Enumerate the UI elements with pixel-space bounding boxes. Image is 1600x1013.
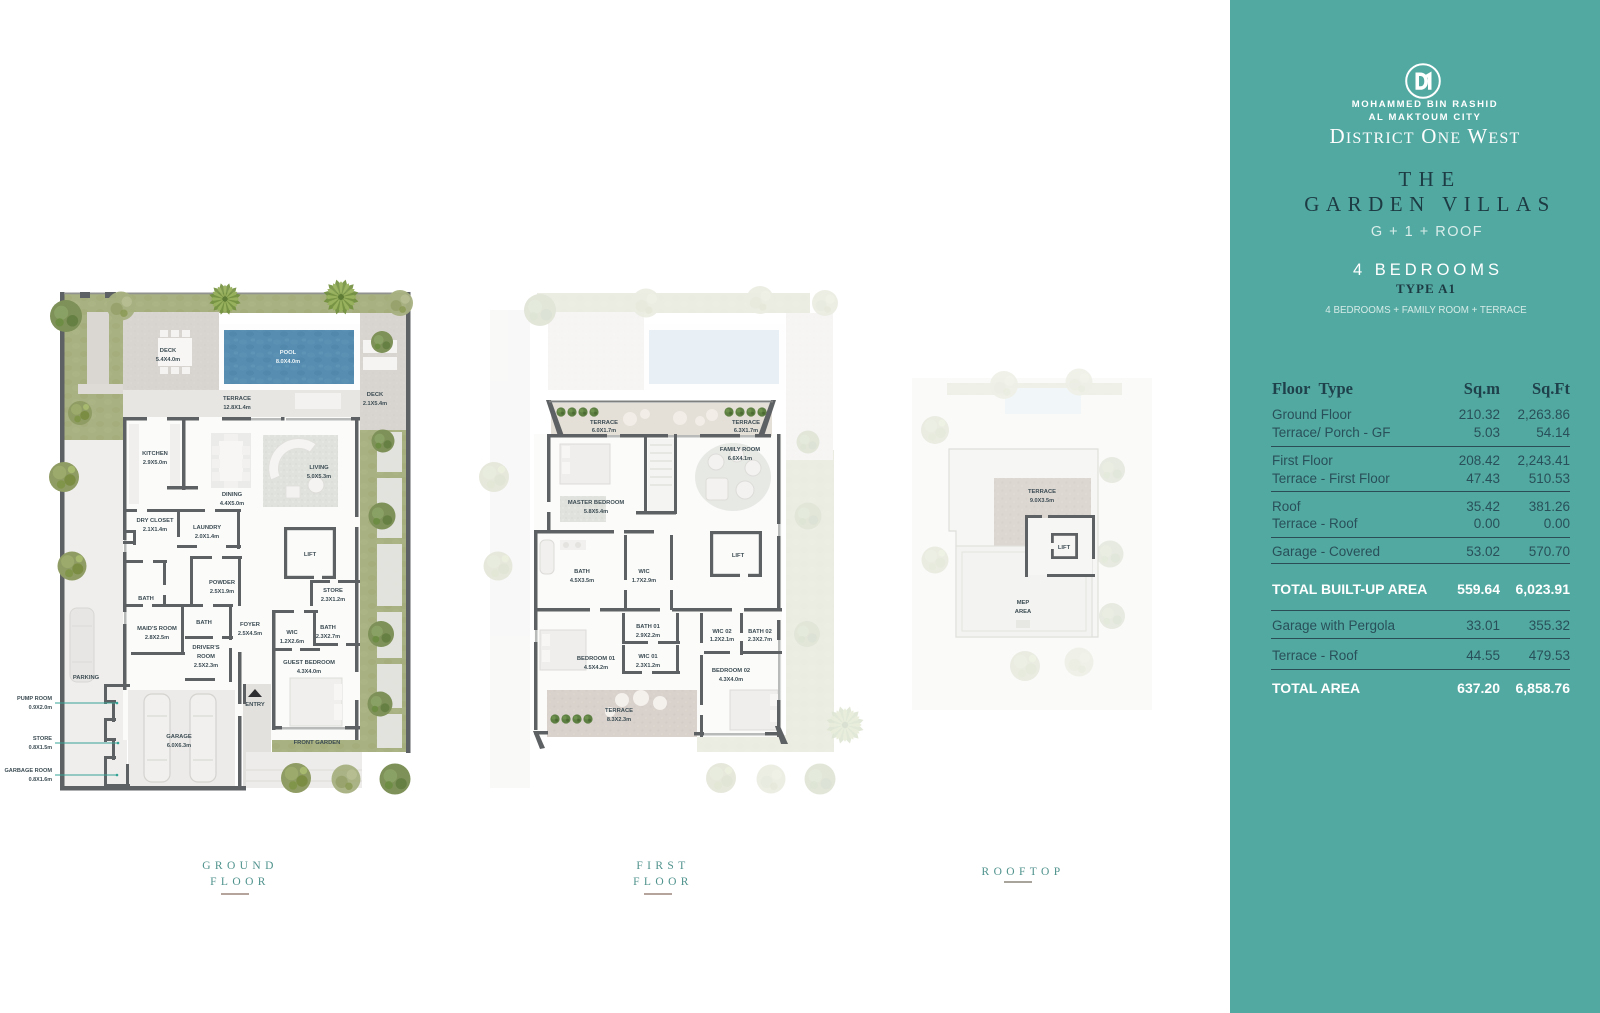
svg-text:LIFT: LIFT xyxy=(304,552,317,558)
svg-text:2.0X1.4m: 2.0X1.4m xyxy=(195,534,219,540)
svg-text:1.2X2.1m: 1.2X2.1m xyxy=(710,637,734,643)
svg-text:4.3X4.0m: 4.3X4.0m xyxy=(297,669,321,675)
svg-text:BATH: BATH xyxy=(574,569,590,575)
svg-text:DECK: DECK xyxy=(367,392,384,398)
svg-text:2.9X5.0m: 2.9X5.0m xyxy=(143,460,167,466)
svg-text:BATH: BATH xyxy=(196,620,212,626)
svg-text:5.0X5.3m: 5.0X5.3m xyxy=(307,474,331,480)
svg-text:4.5X3.5m: 4.5X3.5m xyxy=(570,578,594,584)
svg-text:9.0X3.5m: 9.0X3.5m xyxy=(1030,498,1054,504)
svg-text:4.5X4.2m: 4.5X4.2m xyxy=(584,665,608,671)
svg-text:TERRACE: TERRACE xyxy=(1028,489,1056,495)
svg-text:GUEST BEDROOM: GUEST BEDROOM xyxy=(283,660,335,666)
svg-text:8.0X4.0m: 8.0X4.0m xyxy=(276,359,300,365)
svg-text:2.5X4.5m: 2.5X4.5m xyxy=(238,631,262,637)
svg-text:AREA: AREA xyxy=(1015,609,1032,615)
svg-text:5.8X5.4m: 5.8X5.4m xyxy=(584,509,608,515)
svg-text:PUMP ROOM: PUMP ROOM xyxy=(17,696,52,702)
svg-text:LIFT: LIFT xyxy=(1058,545,1071,551)
svg-text:MASTER BEDROOM: MASTER BEDROOM xyxy=(568,500,625,506)
svg-text:2.5X2.3m: 2.5X2.3m xyxy=(194,663,218,669)
svg-text:2.9X2.2m: 2.9X2.2m xyxy=(636,633,660,639)
svg-text:BEDROOM 02: BEDROOM 02 xyxy=(712,668,750,674)
svg-text:BATH: BATH xyxy=(138,596,154,602)
svg-text:12.8X1.4m: 12.8X1.4m xyxy=(223,405,250,411)
svg-text:MEP: MEP xyxy=(1017,600,1030,606)
svg-text:2.1X5.4m: 2.1X5.4m xyxy=(363,401,387,407)
svg-text:POOL: POOL xyxy=(280,350,297,356)
svg-text:2.3X2.7m: 2.3X2.7m xyxy=(316,634,340,640)
svg-text:FRONT GARDEN: FRONT GARDEN xyxy=(294,740,341,746)
svg-text:STORE: STORE xyxy=(33,736,52,742)
svg-text:ENTRY: ENTRY xyxy=(245,702,265,708)
svg-text:6.6X4.1m: 6.6X4.1m xyxy=(728,456,752,462)
svg-text:0.8X1.5m: 0.8X1.5m xyxy=(29,745,53,751)
svg-text:2.3X1.2m: 2.3X1.2m xyxy=(321,597,345,603)
svg-text:WIC 01: WIC 01 xyxy=(638,654,658,660)
svg-text:GARAGE: GARAGE xyxy=(166,734,192,740)
svg-text:2.5X1.9m: 2.5X1.9m xyxy=(210,589,234,595)
svg-text:LAUNDRY: LAUNDRY xyxy=(193,525,221,531)
svg-text:0.8X1.6m: 0.8X1.6m xyxy=(29,777,53,783)
svg-text:2.8X2.5m: 2.8X2.5m xyxy=(145,635,169,641)
svg-text:BATH: BATH xyxy=(320,625,336,631)
svg-text:6.0X6.3m: 6.0X6.3m xyxy=(167,743,191,749)
svg-text:0.9X2.0m: 0.9X2.0m xyxy=(29,705,53,711)
svg-text:5.4X4.0m: 5.4X4.0m xyxy=(156,357,180,363)
svg-text:BATH 01: BATH 01 xyxy=(636,624,661,630)
svg-text:2.1X1.4m: 2.1X1.4m xyxy=(143,527,167,533)
svg-text:WIC 02: WIC 02 xyxy=(712,629,731,635)
svg-text:6.0X1.7m: 6.0X1.7m xyxy=(592,428,616,434)
svg-text:DRIVER'S: DRIVER'S xyxy=(192,645,219,651)
svg-text:TERRACE: TERRACE xyxy=(732,420,760,426)
svg-text:FAMILY ROOM: FAMILY ROOM xyxy=(720,447,760,453)
svg-text:LIVING: LIVING xyxy=(309,465,329,471)
svg-text:2.3X2.7m: 2.3X2.7m xyxy=(748,637,772,643)
svg-text:6.3X1.7m: 6.3X1.7m xyxy=(734,428,758,434)
svg-text:GARBAGE ROOM: GARBAGE ROOM xyxy=(4,768,52,774)
svg-text:4.4X5.0m: 4.4X5.0m xyxy=(220,501,244,507)
svg-text:WIC: WIC xyxy=(638,569,650,575)
svg-text:2.3X1.2m: 2.3X1.2m xyxy=(636,663,660,669)
svg-text:DINING: DINING xyxy=(222,492,243,498)
svg-text:TERRACE: TERRACE xyxy=(223,396,251,402)
svg-text:WIC: WIC xyxy=(286,630,298,636)
svg-text:8.3X2.3m: 8.3X2.3m xyxy=(607,717,631,723)
svg-text:POWDER: POWDER xyxy=(209,580,236,586)
svg-text:MAID'S ROOM: MAID'S ROOM xyxy=(137,626,177,632)
svg-text:FOYER: FOYER xyxy=(240,622,261,628)
svg-text:TERRACE: TERRACE xyxy=(590,420,618,426)
svg-text:ROOM: ROOM xyxy=(197,654,215,660)
svg-text:STORE: STORE xyxy=(323,588,343,594)
svg-text:4.3X4.0m: 4.3X4.0m xyxy=(719,677,743,683)
svg-text:PARKING: PARKING xyxy=(73,675,100,681)
svg-text:BEDROOM 01: BEDROOM 01 xyxy=(577,656,616,662)
svg-text:1.2X2.6m: 1.2X2.6m xyxy=(280,639,304,645)
svg-text:KITCHEN: KITCHEN xyxy=(142,451,168,457)
svg-text:DECK: DECK xyxy=(160,348,177,354)
svg-text:DRY CLOSET: DRY CLOSET xyxy=(136,518,173,524)
svg-text:LIFT: LIFT xyxy=(732,553,745,559)
svg-text:TERRACE: TERRACE xyxy=(605,708,633,714)
svg-text:BATH 02: BATH 02 xyxy=(748,629,772,635)
svg-text:1.7X2.9m: 1.7X2.9m xyxy=(632,578,656,584)
